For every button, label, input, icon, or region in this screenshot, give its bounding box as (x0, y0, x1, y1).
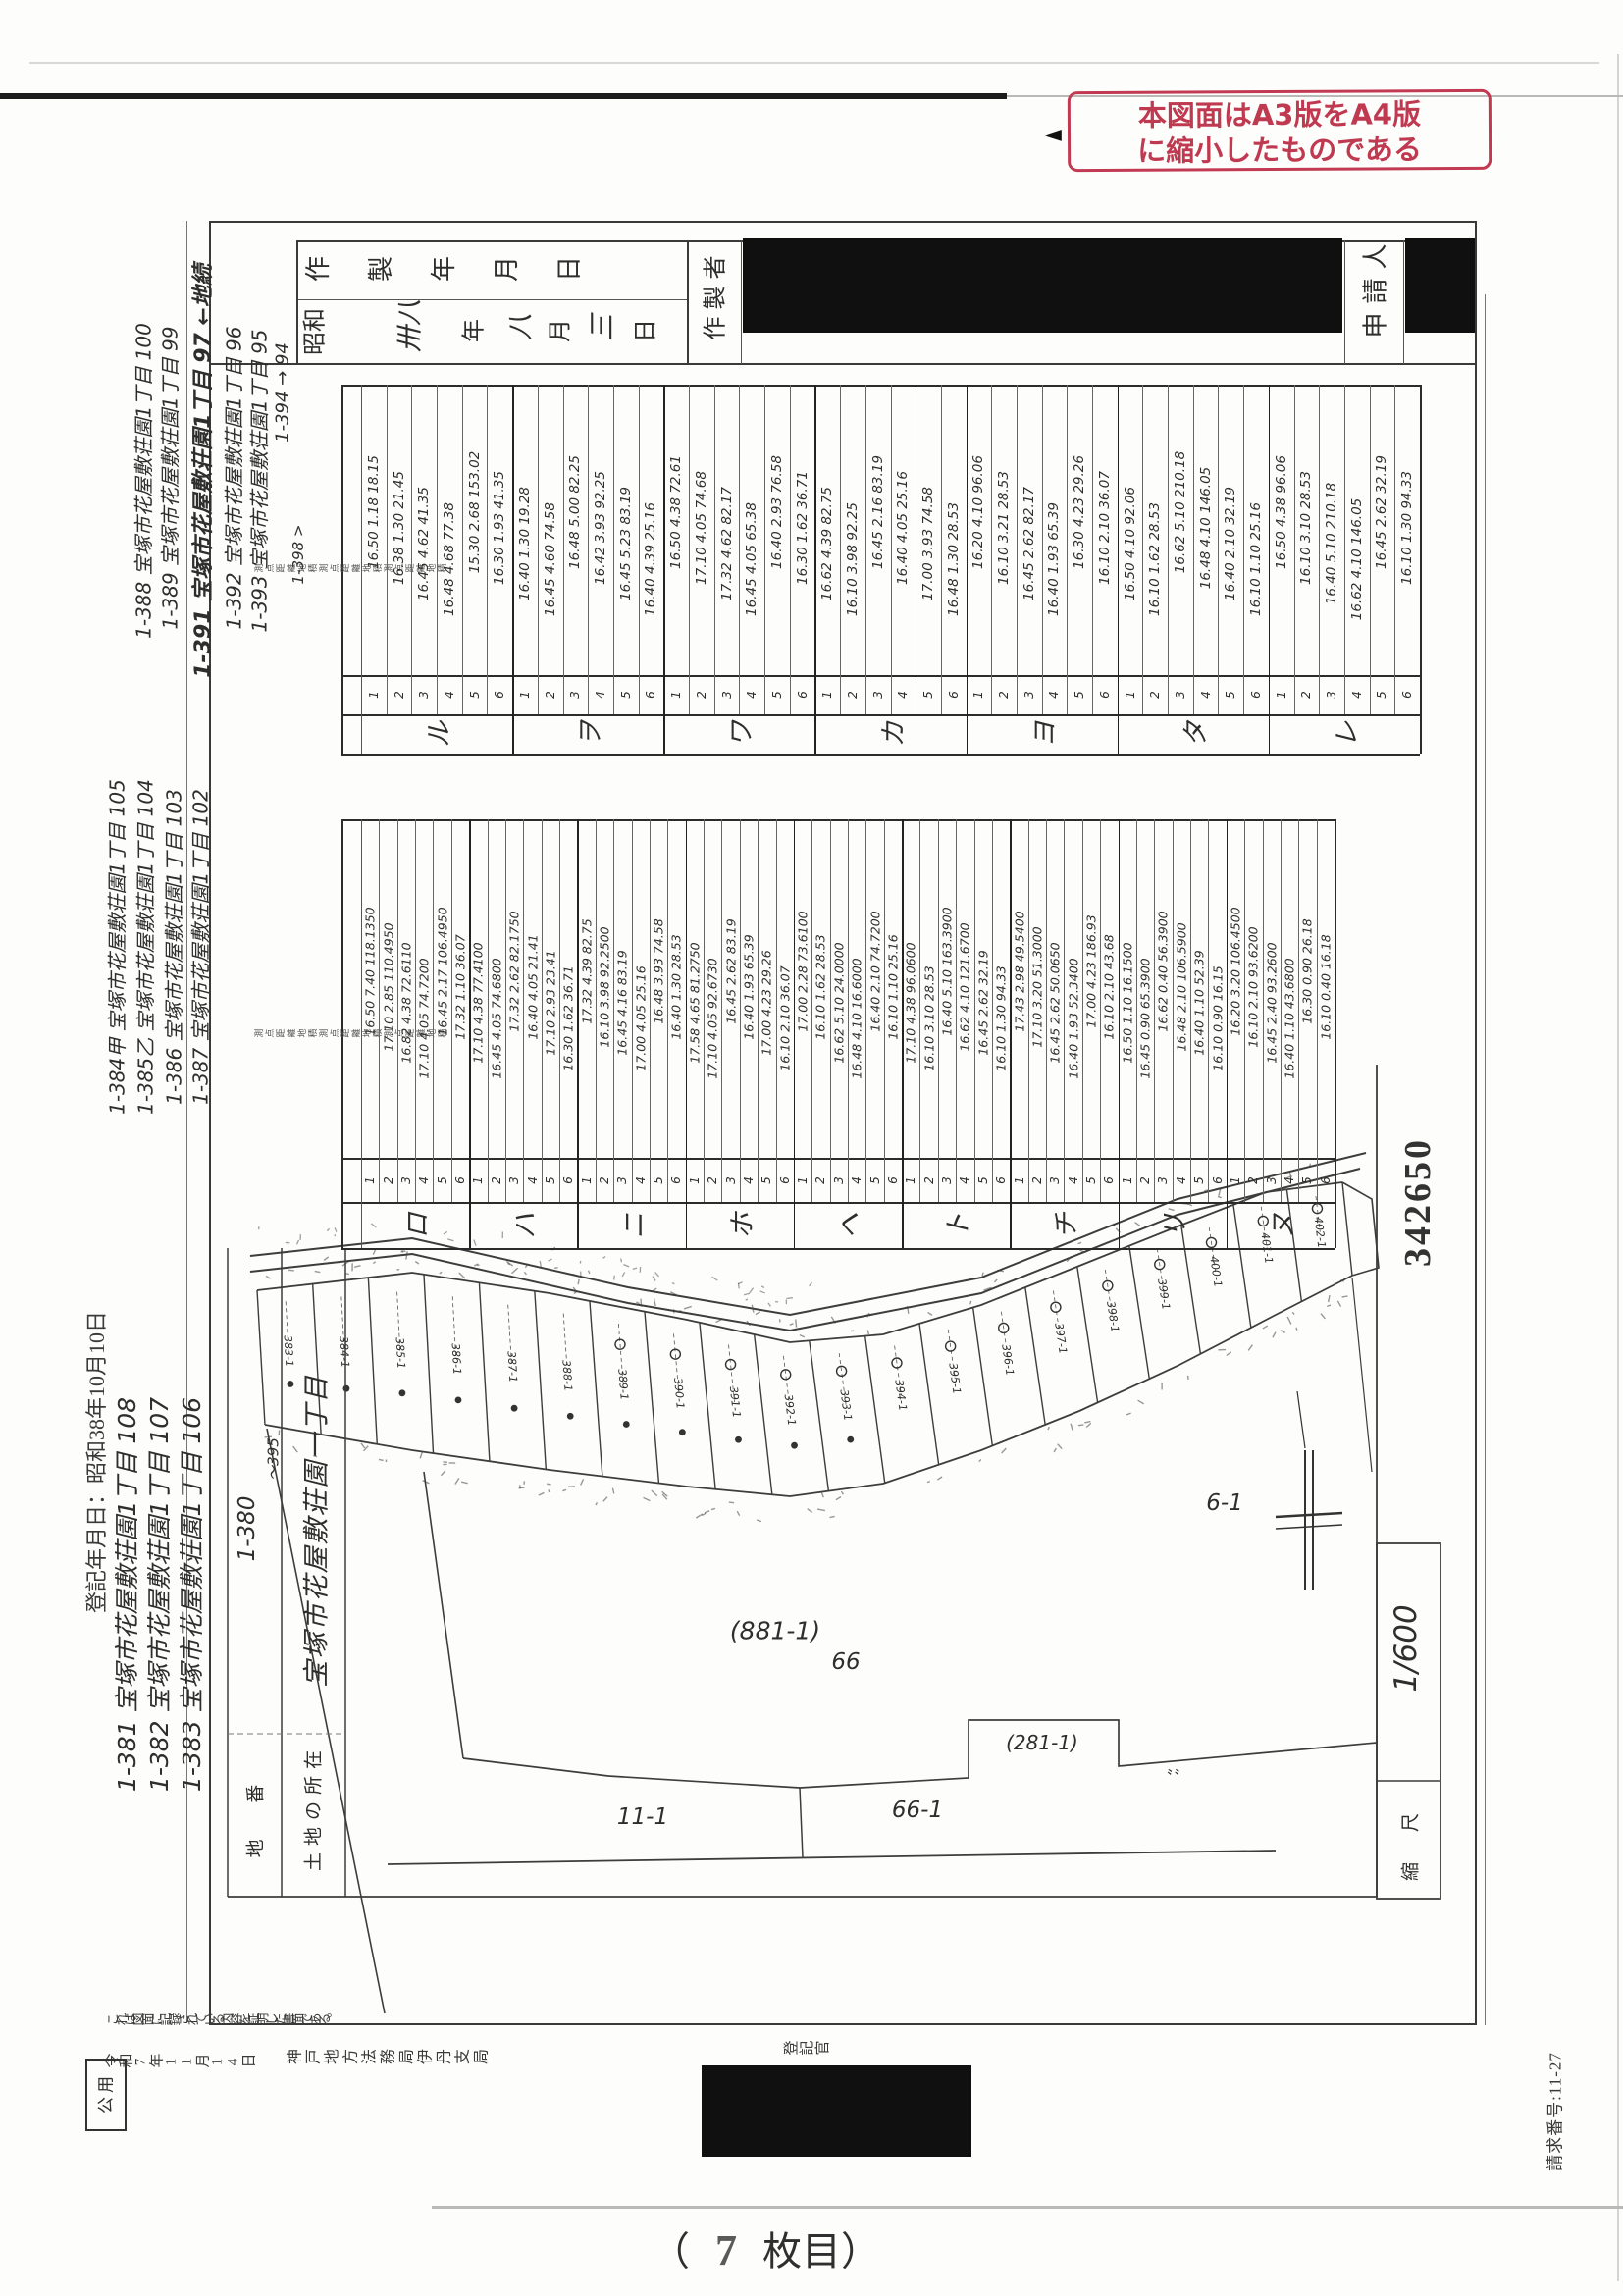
margin-note-label: 1-394 → 94 (273, 342, 293, 443)
table-col-line (941, 385, 942, 714)
table-cell-values-label: 16.48 4.10 16.6000 (850, 959, 864, 1079)
table-col-line (790, 385, 791, 714)
table-cell-values-label: 16.45 4.05 74.6800 (489, 959, 503, 1079)
handwriting-noise (729, 1502, 734, 1503)
margin-note-label: 1-398 > (289, 525, 307, 585)
handwriting-noise (994, 1279, 997, 1282)
handwriting-noise (1248, 1345, 1252, 1351)
table-point-number-label: 4 (443, 691, 456, 699)
table-point-number-label: 3 (832, 1176, 846, 1184)
parcel-boundary (424, 1472, 463, 1758)
table-cell-values-label: 16.10 2.10 93.6200 (1246, 927, 1261, 1048)
parcel-label-south-label: 66-1 (892, 1798, 943, 1823)
table-cell-values-label: 16.45 2.17 106.4950 (435, 908, 449, 1036)
table-group-line (1269, 385, 1271, 754)
table-cell-values-label: 16.45 5.23 83.19 (618, 487, 634, 600)
table-point-number-label: 2 (490, 1176, 503, 1184)
table-point-number-label: 4 (742, 1176, 756, 1184)
table-col-line (1042, 385, 1043, 714)
handwriting-noise (746, 1299, 748, 1300)
table-point-number-label: 4 (1199, 691, 1213, 699)
table-point-number-label: 5 (1073, 691, 1086, 699)
table-lot-symbol-label: ニ (612, 1212, 651, 1238)
handwriting-noise (602, 1257, 605, 1259)
handwriting-noise (1337, 1301, 1340, 1307)
margin-note-label: 1-383 宝塚市花屋敷荘園1丁目 106 (173, 1397, 208, 1792)
survey-marker-dot (288, 1381, 294, 1387)
table-group-line (1118, 385, 1120, 754)
lot-divider (1342, 1182, 1352, 1276)
table-cell-values-label: 16.10 3.10 28.53 (921, 966, 936, 1071)
table-lot-symbol-label: ヘ (829, 1212, 867, 1238)
handwriting-noise (415, 1261, 419, 1264)
table-cell-values-label: 16.62 5.10 210.18 (1173, 451, 1188, 574)
table-point-number-label: 6 (1102, 1176, 1116, 1184)
handwriting-noise (979, 1460, 981, 1462)
lot-number-label: 390-1 (671, 1377, 687, 1409)
table-cell-values-label: 16.42 3.93 92.25 (593, 471, 608, 585)
table-point-number-label: 6 (669, 1176, 683, 1184)
handwriting-noise (1263, 1326, 1268, 1329)
table-cell-values-label: 16.50 1.18 18.15 (366, 455, 382, 569)
table-cell-values-label: 16.45 2.40 93.2600 (1264, 943, 1279, 1064)
handwriting-noise (441, 1471, 445, 1476)
handwriting-noise (623, 1265, 629, 1267)
handwriting-noise (562, 1489, 566, 1490)
table-point-number-label: 3 (1048, 1176, 1062, 1184)
handwriting-noise (790, 1324, 794, 1325)
handwriting-noise (574, 1291, 577, 1293)
table-point-number-label: 1 (580, 1176, 594, 1184)
table-col-line (1294, 385, 1295, 714)
handwriting-noise (554, 1268, 558, 1269)
table-cell-values-label: 16.30 4.23 29.26 (1072, 455, 1087, 569)
margin-note-label: 1-387 宝塚市花屋敷荘園1丁目 102 (185, 789, 214, 1105)
handwriting-noise (1187, 1204, 1192, 1206)
table-cell-values-label: 17.00 4.23 186.93 (1084, 915, 1099, 1028)
handwriting-noise (867, 1313, 869, 1317)
handwriting-noise (406, 1251, 407, 1259)
table-point-number-label: 6 (1319, 1176, 1333, 1184)
table-cell-values-label: 16.48 1.30 28.53 (946, 502, 962, 616)
table-cell-values-label: 16.45 2.62 82.17 (1021, 487, 1037, 600)
table-point-number-label: 1 (1229, 1176, 1242, 1184)
handwriting-noise (744, 1293, 750, 1295)
table-point-number-label: 3 (1156, 1176, 1170, 1184)
handwriting-noise (1086, 1423, 1091, 1427)
handwriting-noise (614, 1276, 615, 1280)
table-point-number-label: 1 (904, 1176, 917, 1184)
table-point-number-label: 5 (1084, 1176, 1098, 1184)
table-col-line (721, 819, 722, 1202)
handwriting-noise (711, 1508, 715, 1509)
table-lot-symbol-label: タ (1174, 721, 1212, 748)
table-col-line (487, 385, 488, 714)
table-cell-values-label: 16.62 4.39 82.75 (819, 487, 835, 600)
table-lot-symbol-label: カ (871, 721, 910, 748)
parcel-label-east-label: 6-1 (1206, 1490, 1243, 1516)
table-point-number-label: 1 (1275, 691, 1288, 699)
table-cell-values-label: 17.00 4.23 29.26 (759, 951, 774, 1056)
table-cell-values-label: 16.40 4.05 21.41 (525, 935, 540, 1040)
table-col-line (1142, 385, 1143, 714)
table-point-number-label: 5 (868, 1176, 882, 1184)
scanned-document-page: ◄ 本図面はA3版をA4版 に縮小したものである 作製年月日 昭和 卅八 年 八… (0, 0, 1623, 2296)
handwriting-noise (796, 1319, 797, 1327)
table-point-number-label: 6 (493, 691, 506, 699)
handwriting-noise (1054, 1448, 1056, 1452)
survey-flag-stem (1297, 1391, 1305, 1448)
handwriting-noise (549, 1259, 552, 1261)
table-cell-values-label: 15.30 2.68 153.02 (467, 451, 483, 574)
table-cell-values-label: 16.10 1.62 28.53 (1147, 502, 1163, 616)
handwriting-noise (354, 1266, 360, 1268)
table-cell-values-label: 17.32 2.62 82.1750 (507, 912, 522, 1032)
margin-note-label: 1-386 宝塚市花屋敷荘園1丁目 103 (159, 789, 187, 1105)
table-col-line (411, 385, 412, 714)
table-point-number-label: 1 (367, 691, 381, 699)
handwriting-noise (547, 1484, 550, 1485)
handwriting-noise (1071, 1424, 1073, 1431)
lot-divider (535, 1291, 546, 1470)
table-point-number-label: 2 (544, 691, 557, 699)
table-cell-values-label: 16.48 3.93 74.58 (652, 919, 666, 1024)
lot-divider (919, 1324, 939, 1465)
table-cell-values-label: 16.50 7.40 118.1350 (363, 908, 378, 1036)
survey-flag (1276, 1513, 1342, 1517)
table-group-line (512, 385, 514, 754)
table-point-number-label: 2 (598, 1176, 611, 1184)
table-cell-values-label: 16.45 2.62 83.19 (723, 919, 738, 1024)
table-point-number-label: 6 (1249, 691, 1263, 699)
table-point-number-label: 5 (619, 691, 633, 699)
table-col-line (1243, 385, 1244, 714)
table-col-line (387, 385, 388, 714)
table-col-line (714, 385, 715, 714)
table-group-line (814, 385, 816, 754)
table-col-line (1193, 385, 1194, 714)
handwriting-noise (455, 1478, 459, 1484)
table-cell-values-label: 16.45 4.60 74.58 (543, 502, 558, 616)
table-lot-symbol-label: ヨ (1022, 721, 1061, 748)
table-col-line (1067, 385, 1068, 714)
table-cell-values-label: 16.10 2.10 43.68 (1102, 935, 1117, 1040)
handwriting-noise (1327, 1305, 1331, 1306)
table-cell-values-label: 16.62 4.10 121.6700 (958, 923, 972, 1052)
handwriting-noise (738, 1283, 739, 1289)
handwriting-noise (757, 1520, 761, 1522)
table-cell-values-label: 17.00 3.93 74.58 (920, 487, 936, 600)
parcel-divider (800, 1788, 803, 1857)
table-cell-values-label: 16.50 4.38 72.61 (668, 455, 684, 569)
table-cell-values-label: 16.48 5.00 82.25 (567, 455, 583, 569)
parcel-label-main2-label: 66 (831, 1649, 860, 1675)
table-point-number-label: 4 (1067, 1176, 1080, 1184)
handwriting-noise (750, 1288, 754, 1293)
table-point-number-label: 3 (1022, 691, 1036, 699)
handwriting-noise (643, 1497, 650, 1500)
margin-note-label: 1-391 宝塚市花屋敷荘園1丁目 97 ←地続 (185, 264, 217, 678)
handwriting-noise (1329, 1295, 1330, 1302)
table-point-number-label: 5 (436, 1176, 449, 1184)
handwriting-noise (696, 1514, 703, 1518)
handwriting-noise (653, 1277, 655, 1281)
handwriting-noise (800, 1335, 805, 1337)
handwriting-noise (1058, 1444, 1062, 1449)
survey-marker-dot (791, 1442, 798, 1449)
handwriting-noise (1002, 1448, 1007, 1453)
survey-marker-dot (623, 1421, 630, 1428)
table-col-line (991, 385, 992, 714)
table-col-line (840, 385, 841, 714)
handwriting-noise (641, 1299, 642, 1307)
table-col-line (613, 385, 614, 714)
handwriting-noise (420, 1451, 422, 1458)
table-point-number-label: 3 (568, 691, 582, 699)
table-cell-values-label: 16.10 0.40 16.18 (1318, 935, 1333, 1040)
handwriting-noise (752, 1305, 754, 1313)
table-col-line (916, 385, 916, 714)
table-cell-values-label: 17.58 4.65 81.2750 (687, 943, 702, 1064)
table-cell-values-label: 16.30 1.62 36.71 (561, 966, 576, 1071)
handwriting-noise (612, 1488, 613, 1494)
table-cell-values-label: 16.48 2.10 106.5900 (1174, 923, 1188, 1052)
handwriting-noise (1138, 1400, 1144, 1404)
handwriting-noise (672, 1283, 674, 1284)
lot-divider (424, 1275, 434, 1453)
handwriting-noise (578, 1279, 579, 1284)
table-col-line (1370, 385, 1371, 714)
lot-divider (1025, 1287, 1045, 1425)
handwriting-noise (841, 1491, 843, 1494)
table-point-number-label: 2 (393, 691, 406, 699)
table-point-number-label: 5 (759, 1176, 773, 1184)
survey-marker-dot (343, 1385, 350, 1392)
table-group-line (967, 385, 969, 754)
lot-divider (645, 1312, 658, 1484)
table-cell-values-label: 16.10 3.98 92.2500 (598, 927, 612, 1048)
table-cell-values-label: 16.45 4.05 65.38 (744, 502, 759, 616)
lot-divider (1129, 1246, 1150, 1380)
survey-marker-dot (847, 1436, 854, 1443)
handwriting-noise (444, 1231, 447, 1234)
table-cell-values-label: 16.50 4.38 96.06 (1274, 455, 1289, 569)
handwriting-noise (440, 1272, 442, 1274)
margin-note-label: 1-388 宝塚市花屋敷荘園1丁目 100 (129, 323, 157, 639)
table-point-number-label: 5 (921, 691, 935, 699)
table-point-number-label: 4 (1350, 691, 1364, 699)
table-col-line (776, 819, 777, 1202)
table-cell-values-label: 16.40 1.30 19.28 (517, 487, 533, 600)
handwriting-noise (622, 1272, 624, 1277)
table-cell-values-label: 16.62 4.10 146.05 (1349, 498, 1365, 621)
table-cell-values-label: 16.45 0.90 65.3900 (1138, 959, 1153, 1079)
table-cell-values-label: 16.45 2.16 83.19 (870, 455, 886, 569)
lot-number-label: 385-1 (393, 1337, 408, 1370)
table-cell-values-label: 16.48 4.68 77.38 (442, 502, 457, 616)
table-point-number-label: 3 (940, 1176, 954, 1184)
table-point-number-label: 4 (417, 1176, 431, 1184)
table-point-number-label: 2 (922, 1176, 936, 1184)
lot-number-label: 386-1 (448, 1343, 463, 1376)
table-cell-values-label: 16.40 1.93 52.3400 (1066, 959, 1080, 1079)
margin-note-label: 1-382 宝塚市花屋敷荘園1丁目 107 (140, 1397, 176, 1792)
handwriting-noise (461, 1482, 468, 1484)
table-point-number-label: 3 (724, 1176, 738, 1184)
table-col-line (632, 819, 633, 1202)
handwriting-noise (970, 1301, 971, 1304)
table-point-number-label: 5 (1375, 691, 1388, 699)
table-point-number-label: 2 (1030, 1176, 1044, 1184)
table-col-line (891, 385, 892, 714)
handwriting-noise (459, 1273, 465, 1278)
handwriting-noise (760, 1291, 765, 1293)
survey-marker-ring (1312, 1204, 1322, 1214)
margin-note-label: 1-381 宝塚市花屋敷荘園1丁目 108 (108, 1397, 143, 1792)
handwriting-noise (1227, 1352, 1231, 1356)
table-cell-values-label: 16.50 1.10 16.1500 (1120, 943, 1134, 1064)
handwriting-noise (373, 1250, 375, 1254)
table-lot-symbol-label: ワ (720, 721, 759, 748)
survey-marker-dot (399, 1389, 406, 1396)
table-point-number-label: 2 (382, 1176, 395, 1184)
lot-divider (810, 1340, 829, 1490)
table-point-number-label: 2 (1148, 691, 1162, 699)
handwriting-noise (297, 1240, 299, 1245)
table-point-number-label: 2 (997, 691, 1011, 699)
table-point-number-label: 2 (695, 691, 708, 699)
handwriting-noise (520, 1485, 521, 1488)
table-col-line (689, 385, 690, 714)
table-line (341, 1158, 1335, 1160)
table-cell-values-label: 16.40 2.93 76.58 (769, 455, 785, 569)
lot-divider (368, 1278, 377, 1444)
parcel-label-notch-label: (281-1) (1006, 1731, 1078, 1754)
handwriting-noise (737, 1511, 739, 1516)
margin-note-label: 1-392 宝塚市花屋敷荘園1丁目 96 (219, 326, 247, 629)
table-cell-values-label: 16.40 4.39 25.16 (643, 502, 658, 616)
table-point-number-label: 3 (507, 1176, 521, 1184)
footer-page-number: 7 (715, 2225, 737, 2275)
handwriting-noise (684, 1306, 692, 1309)
table-line (341, 714, 1420, 716)
lot-divider (973, 1308, 993, 1446)
survey-marker-dot (735, 1436, 742, 1443)
handwriting-noise (636, 1302, 639, 1304)
lot-divider (755, 1334, 772, 1494)
lot-divider (479, 1282, 490, 1461)
table-cell-values-label: 16.10 1.10 25.16 (885, 935, 900, 1040)
handwriting-noise (1077, 1242, 1081, 1243)
table-col-line (488, 819, 489, 1202)
table-line (341, 675, 1420, 677)
handwriting-noise (786, 1298, 792, 1299)
table-col-line (1394, 385, 1395, 714)
table-point-number-label: 1 (971, 691, 985, 699)
table-cell-values-label: 17.10 2.93 23.41 (543, 951, 557, 1056)
lot-divider (865, 1336, 885, 1484)
table-point-number-label: 6 (561, 1176, 575, 1184)
handwriting-noise (633, 1268, 637, 1269)
handwriting-noise (288, 1270, 294, 1271)
table-lot-symbol-label: ト (937, 1212, 975, 1238)
handwriting-noise (927, 1482, 930, 1483)
handwriting-noise (335, 1227, 337, 1231)
handwriting-noise (705, 1511, 709, 1513)
margin-note-label: 1-393 宝塚市花屋敷荘園1丁目 95 (244, 329, 273, 632)
table-col-line (919, 819, 920, 1202)
lot-divider (1181, 1226, 1201, 1354)
table-lot-symbol-label: ロ (396, 1212, 435, 1238)
table-cell-values-label: 16.10 2.10 36.07 (1097, 471, 1113, 585)
table-col-line (538, 385, 539, 714)
lot-number-label: 391-1 (726, 1385, 742, 1418)
table-lot-symbol-label: リ (1153, 1212, 1191, 1238)
handwriting-noise (540, 1261, 541, 1267)
table-point-number-label: 3 (417, 691, 431, 699)
table-point-number-label: 5 (652, 1176, 665, 1184)
table-col-line (1319, 385, 1320, 714)
table-cell-values-label: 16.40 1.30 28.53 (669, 935, 684, 1040)
parcel-label-main-label: (881-1) (730, 1617, 820, 1645)
table-point-number-label: 4 (1175, 1176, 1188, 1184)
table-cell-values-label: 17.10 4.38 96.0600 (904, 943, 918, 1064)
table-point-number-label: 1 (820, 691, 834, 699)
handwriting-noise (1321, 1314, 1325, 1319)
table-cell-values-label: 16.82 4.38 72.6110 (398, 943, 413, 1064)
handwriting-noise (1218, 1196, 1222, 1197)
table-col-line (1064, 819, 1065, 1202)
handwriting-noise (1281, 1331, 1284, 1333)
handwriting-noise (324, 1257, 329, 1260)
table-cell-values-label: 16.10 1.10 25.16 (1248, 502, 1264, 616)
page-number-footer: （ 7 枚目） (608, 2219, 922, 2276)
handwriting-noise (361, 1443, 365, 1448)
table-line (1335, 819, 1336, 1248)
table-cell-values-label: 16.45 2.62 50.0650 (1048, 943, 1063, 1064)
table-cell-values-label: 16.40 2.10 74.7200 (867, 912, 882, 1032)
table-point-number-label: 3 (399, 1176, 413, 1184)
table-point-number-label: 4 (958, 1176, 971, 1184)
handwriting-noise (712, 1277, 718, 1280)
table-group-line (577, 819, 579, 1248)
table-cell-values-label: 16.50 4.10 92.06 (1123, 487, 1138, 600)
handwriting-noise (654, 1298, 656, 1306)
margin-note-label: 1-385乙 宝塚市花屋敷荘園1丁目 104 (131, 779, 159, 1115)
table-point-number-label: 4 (526, 1176, 540, 1184)
table-lot-symbol-label: レ (1325, 721, 1363, 748)
table-col-line (1344, 385, 1345, 714)
handwriting-noise (836, 1496, 841, 1499)
table-col-line (764, 385, 765, 714)
table-line (341, 819, 1335, 821)
table-col-line (1168, 385, 1169, 714)
handwriting-noise (756, 1312, 760, 1315)
table-col-line (437, 385, 438, 714)
table-point-number-label: 4 (1047, 691, 1061, 699)
table-cell-values-label: 16.45 4.16 83.19 (615, 951, 630, 1056)
table-point-number-label: 6 (1400, 691, 1414, 699)
handwriting-noise (928, 1312, 932, 1315)
table-cell-values-label: 17.32 1.10 36.07 (453, 935, 468, 1040)
margin-note-label: 1-389 宝塚市花屋敷荘園1丁目 99 (155, 326, 183, 629)
table-group-line (663, 385, 665, 754)
lot-divider (590, 1301, 602, 1477)
handwriting-noise (817, 1509, 825, 1511)
table-point-number-label: 6 (453, 1176, 467, 1184)
handwriting-noise (761, 1286, 764, 1288)
handwriting-noise (830, 1516, 835, 1517)
